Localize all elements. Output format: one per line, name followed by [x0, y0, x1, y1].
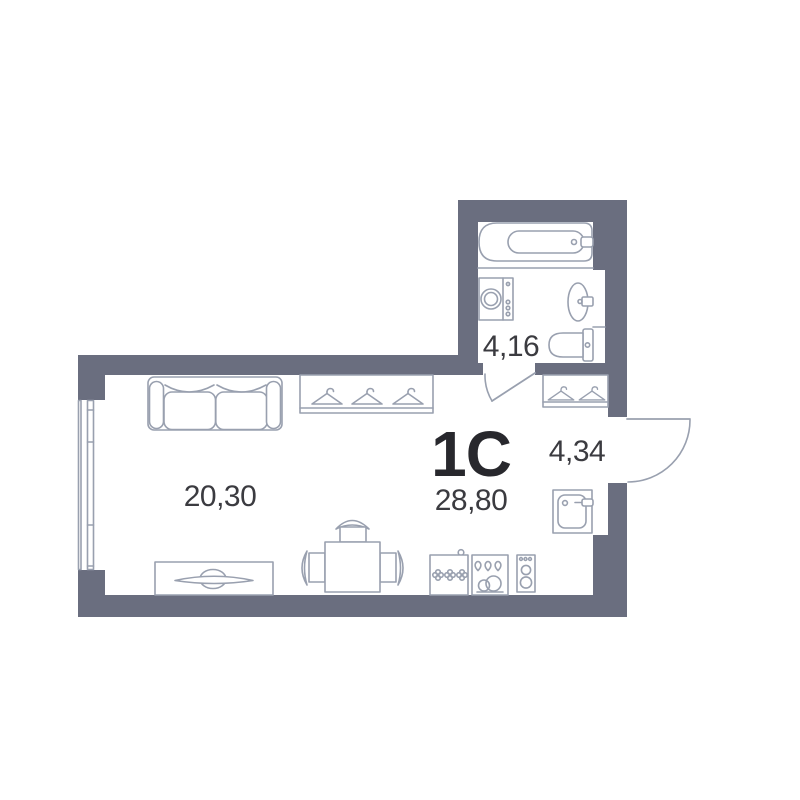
wall-segment	[608, 375, 627, 417]
wall-segment	[78, 355, 458, 375]
wall-segment	[608, 483, 627, 535]
window-icon	[79, 401, 94, 570]
tv-stand-icon	[155, 562, 273, 595]
living-area-label: 20,30	[184, 480, 257, 513]
wash-basin-icon	[568, 283, 593, 321]
toilet-icon	[549, 327, 605, 361]
oven-icon	[517, 555, 535, 592]
hallway-wardrobe-icon	[543, 375, 608, 407]
wall-segment	[78, 355, 105, 400]
sofa-icon	[148, 377, 282, 430]
chair-icon	[302, 551, 325, 585]
hob-unit-icon	[430, 550, 468, 595]
kitchen-sink-unit-icon	[472, 555, 508, 595]
wall-segment	[458, 363, 483, 375]
wall-segment	[593, 222, 627, 270]
wall-segment	[458, 200, 627, 222]
interior-door-icon	[485, 373, 535, 401]
kitchen-wall-sink-icon	[553, 490, 593, 533]
wall-segment	[605, 270, 627, 363]
floor-plan-svg: 1C 28,80 20,30 4,16 4,34	[0, 0, 800, 800]
bathtub-icon	[478, 223, 593, 268]
wall-segment	[593, 535, 627, 595]
chair-icon	[336, 521, 369, 543]
unit-label: 1C	[431, 418, 511, 490]
wall-segment	[458, 222, 478, 375]
total-area-label: 28,80	[435, 484, 508, 517]
washing-machine-icon	[479, 278, 513, 320]
hallway-area-label: 4,34	[549, 435, 605, 468]
chair-icon	[380, 551, 403, 585]
wardrobe-icon	[300, 375, 433, 413]
entry-door-icon	[627, 419, 690, 482]
bathroom-area-label: 4,16	[483, 330, 539, 363]
floor-plan: 1C 28,80 20,30 4,16 4,34	[0, 0, 800, 800]
wall-segment	[78, 595, 627, 617]
dining-table-icon	[302, 521, 403, 593]
wall-segment	[535, 363, 627, 375]
